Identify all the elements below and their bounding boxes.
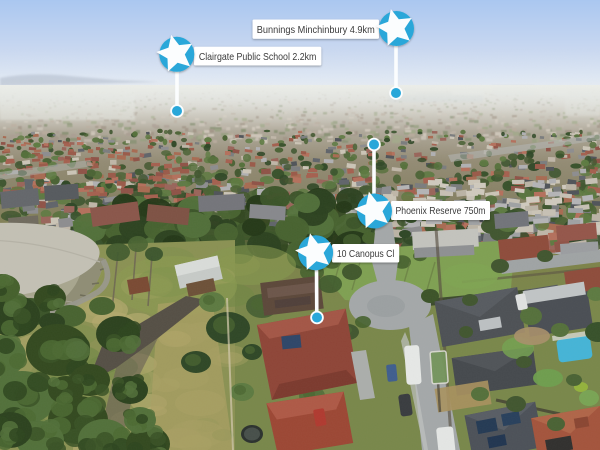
svg-text:Clairgate Public School 2.2km: Clairgate Public School 2.2km [199, 52, 317, 63]
svg-text:Phoenix Reserve 750m: Phoenix Reserve 750m [396, 206, 486, 217]
svg-text:Bunnings Minchinbury 4.9km: Bunnings Minchinbury 4.9km [257, 25, 375, 36]
svg-text:10 Canopus Cl: 10 Canopus Cl [337, 249, 395, 260]
